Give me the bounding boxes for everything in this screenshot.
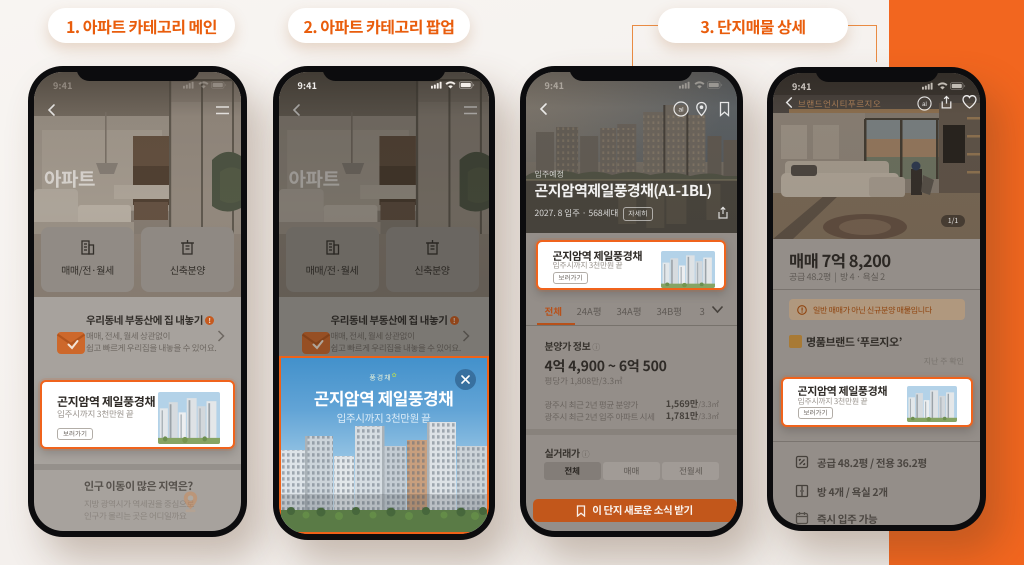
svg-text:al: al [678, 107, 684, 114]
svg-text:al: al [922, 101, 927, 108]
